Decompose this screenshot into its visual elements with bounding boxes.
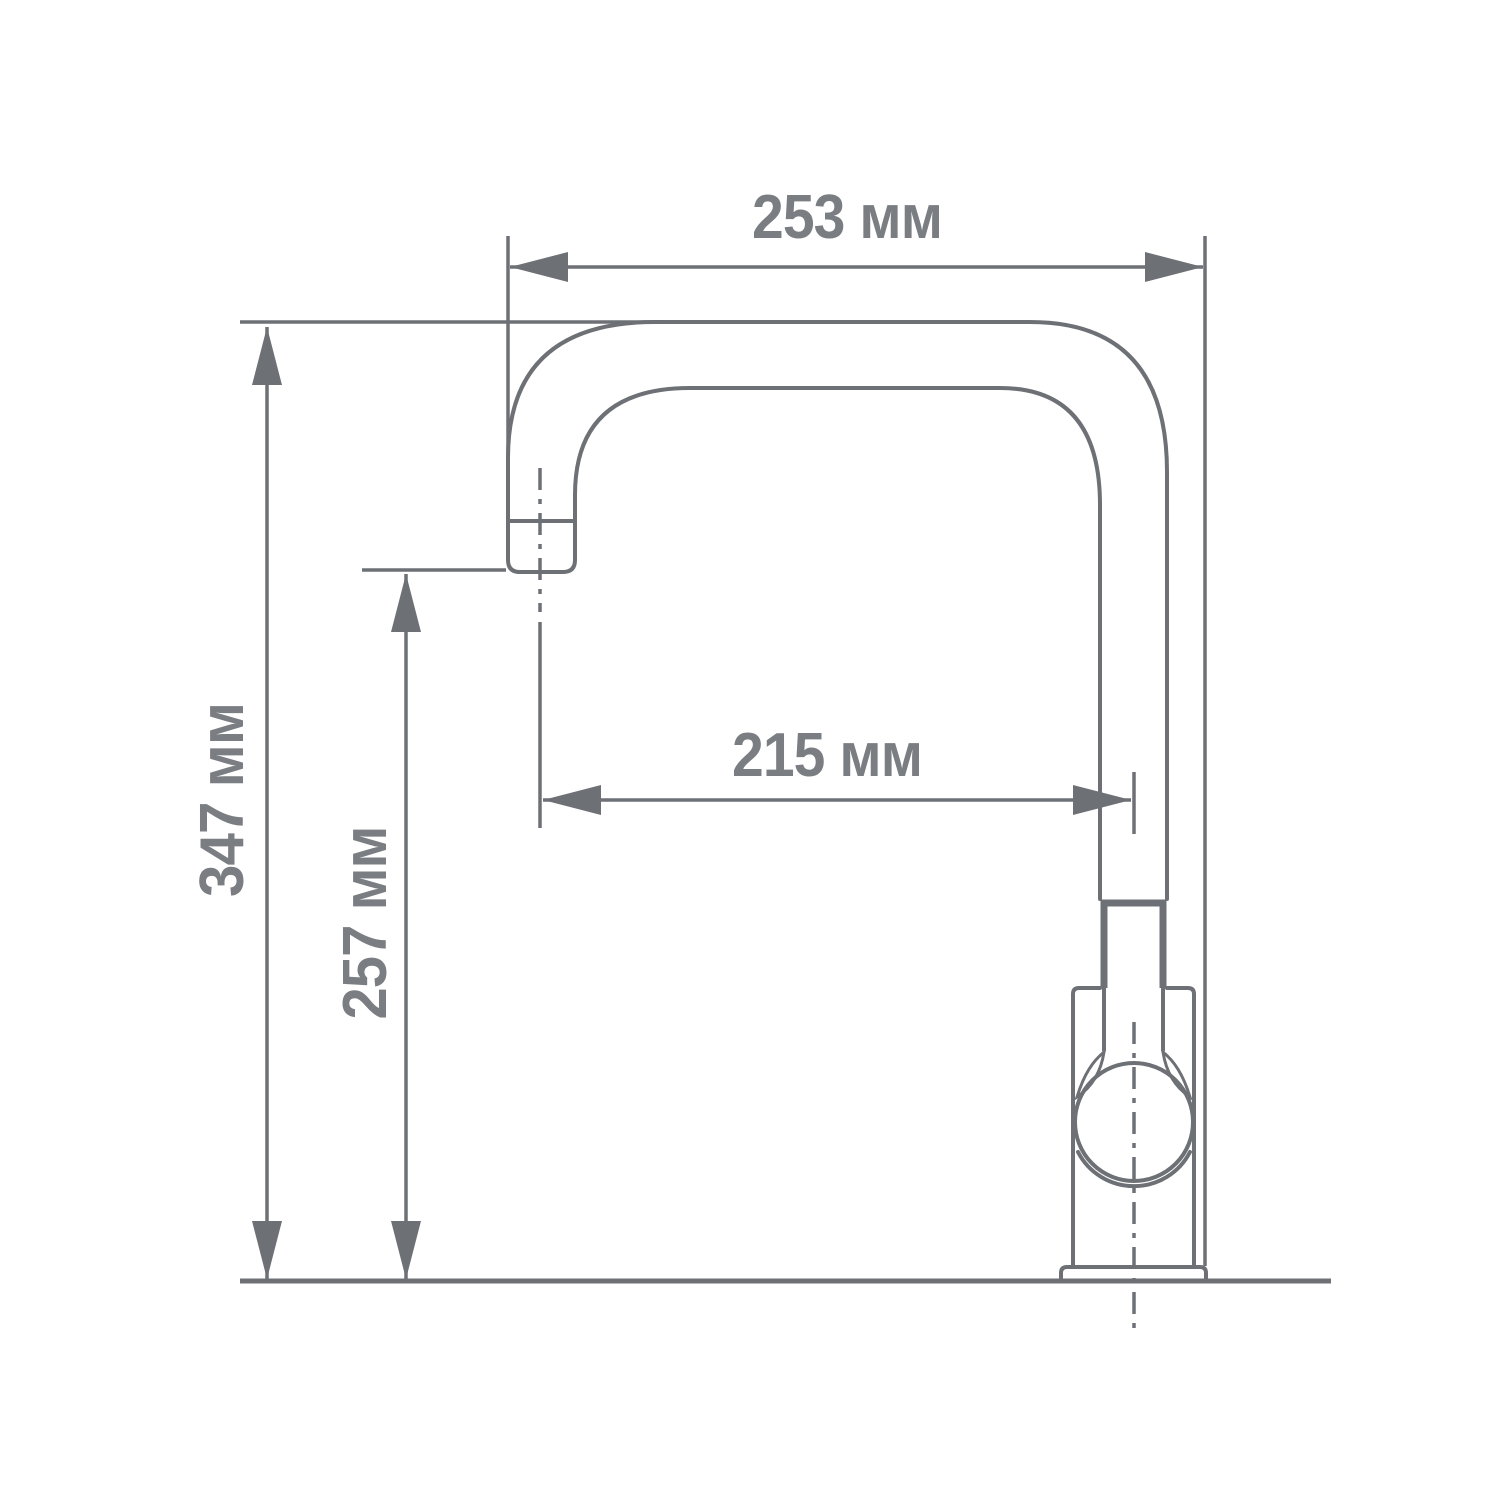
arrowhead-left xyxy=(543,785,601,815)
dim-label-total-height: 347 мм xyxy=(188,703,257,897)
arrowhead-left xyxy=(510,252,568,282)
arrowhead-right xyxy=(1145,252,1203,282)
faucet-technical-drawing: 253 мм 347 мм 257 мм 215 мм xyxy=(0,0,1500,1500)
dim-label-spout-height: 257 мм xyxy=(331,827,400,1020)
body-collar xyxy=(1104,903,1163,988)
dim-label-spout-reach: 215 мм xyxy=(732,721,922,790)
drawing-svg: 253 мм 347 мм 257 мм 215 мм xyxy=(0,0,1500,1500)
arrowhead-bottom xyxy=(391,1221,421,1279)
arrowhead-top xyxy=(252,327,282,385)
arrowhead-bottom xyxy=(252,1221,282,1279)
dimension-spout-reach: 215 мм xyxy=(540,468,1134,834)
arrowhead-top xyxy=(391,574,421,632)
dim-label-total-width: 253 мм xyxy=(752,183,942,252)
faucet-inner-contour xyxy=(575,388,1100,899)
dimension-spout-height: 257 мм xyxy=(331,570,506,1279)
